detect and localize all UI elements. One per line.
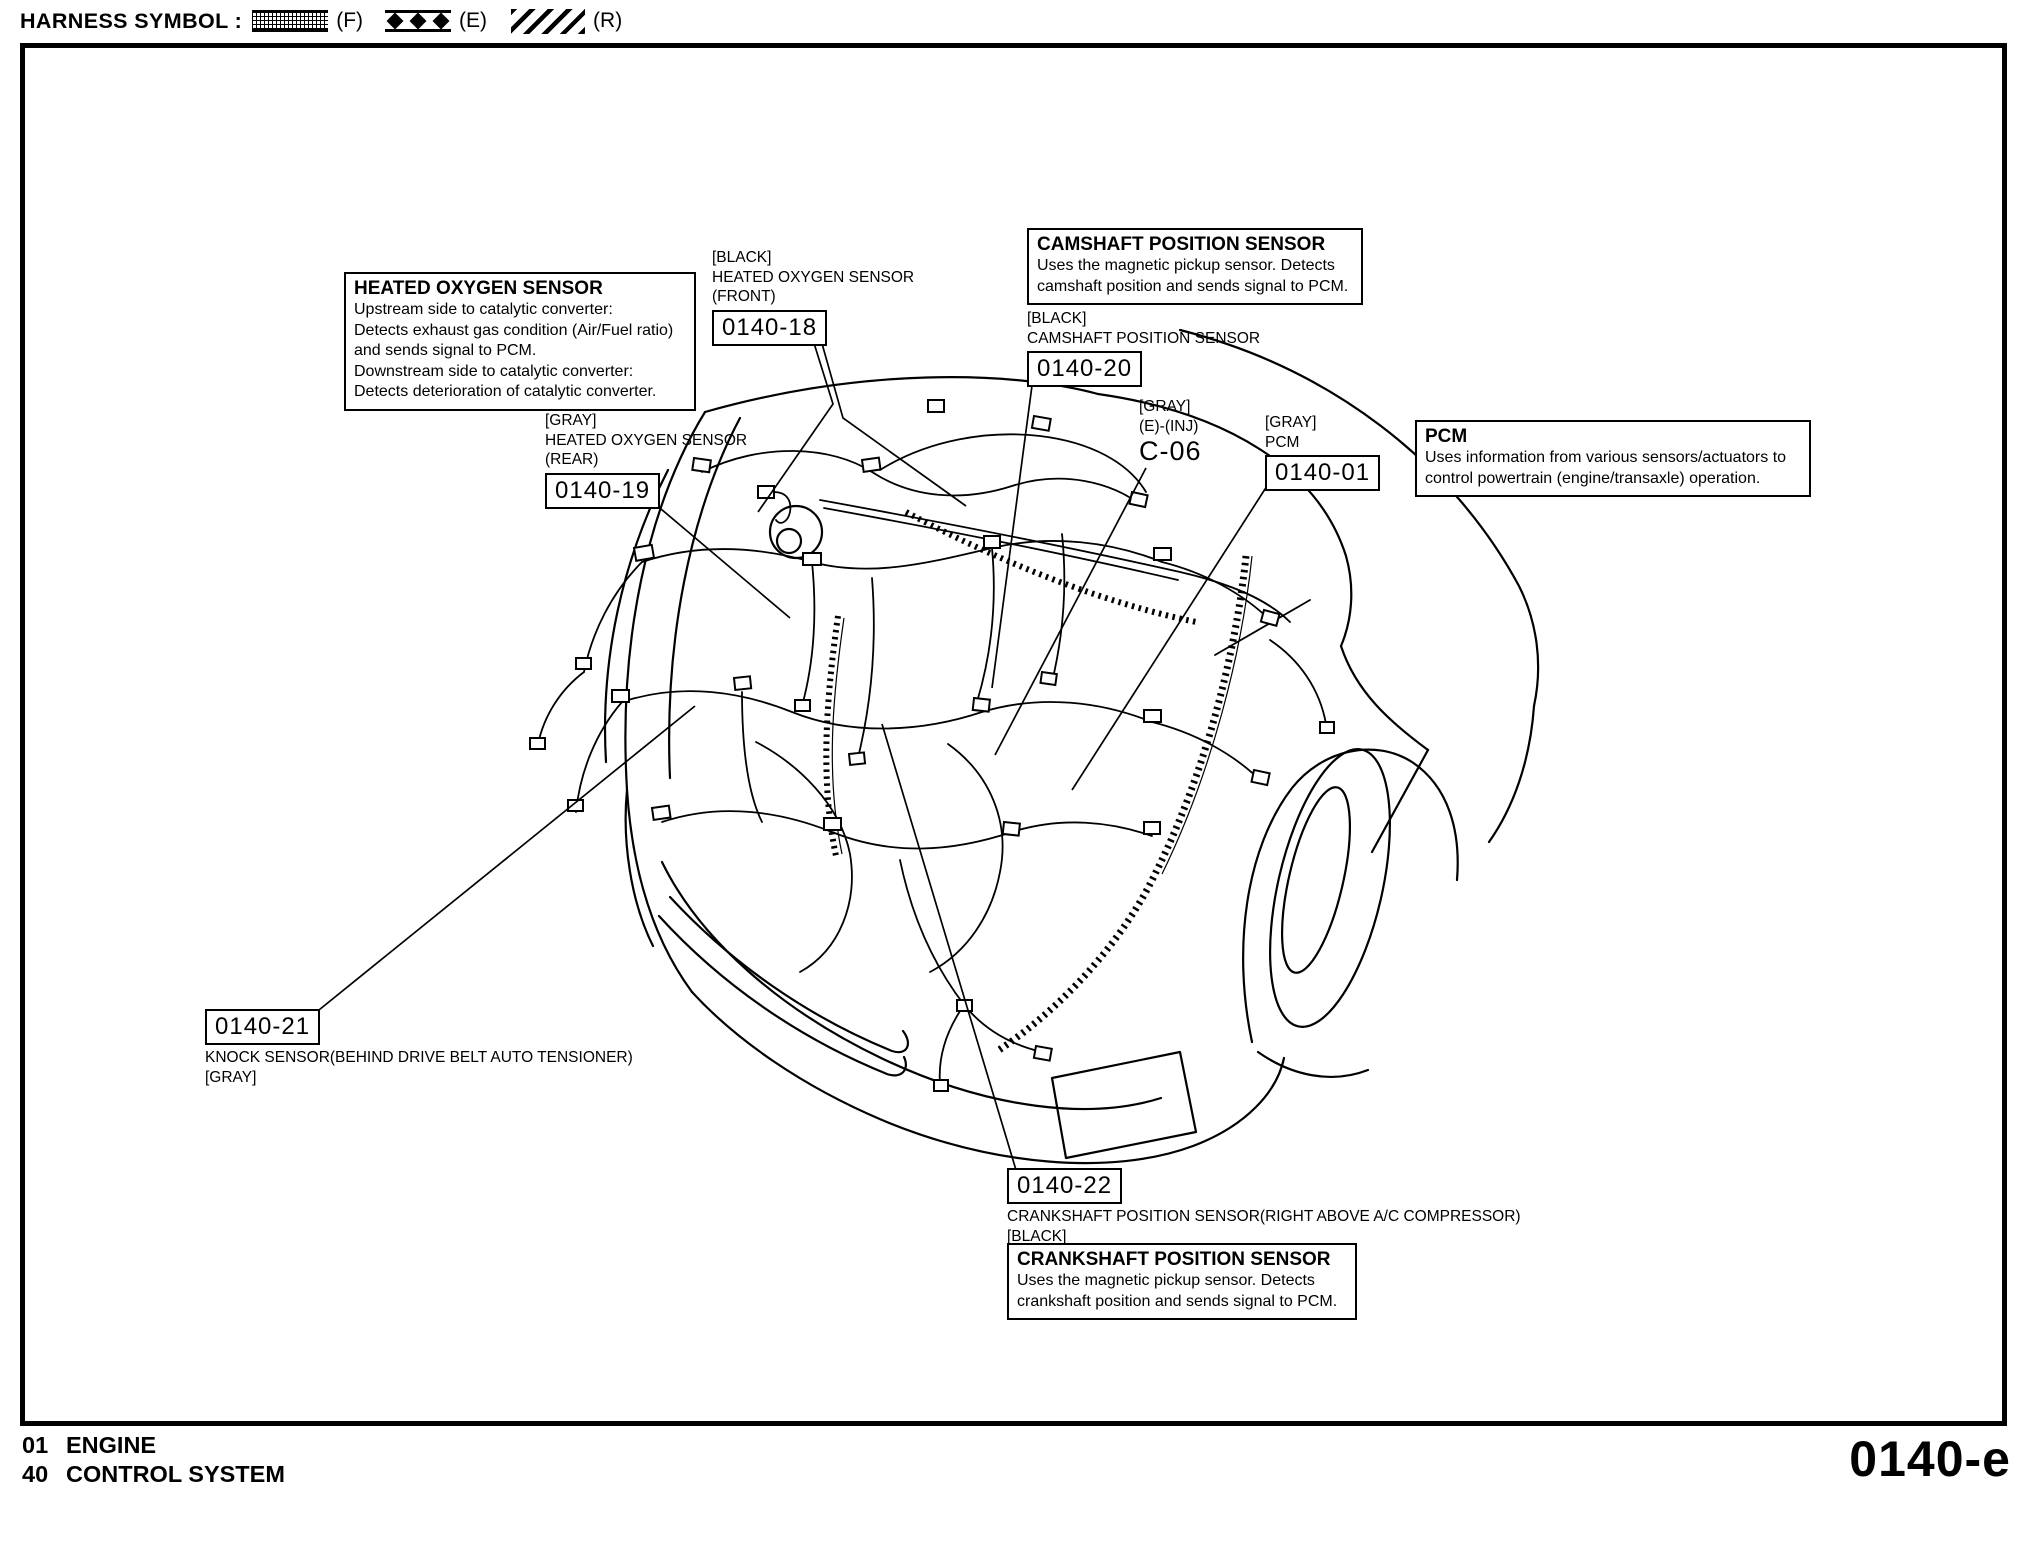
section-row: 01ENGINE <box>22 1431 285 1460</box>
engine-harness-letter: (E) <box>459 9 487 33</box>
info-box-line: Uses information from various sensors/ac… <box>1425 448 1801 469</box>
component-name: (E)-(INJ) <box>1139 417 1202 437</box>
component-name: CAMSHAFT POSITION SENSOR <box>1027 329 1260 349</box>
xref-0140-19[interactable]: 0140-19 <box>545 473 660 509</box>
harness-color-tag: [GRAY] <box>1265 413 1380 433</box>
connector-code-c06: C-06 <box>1139 436 1202 467</box>
info-box-line: control powertrain (engine/transaxle) op… <box>1425 469 1801 490</box>
section-number: 40 <box>22 1460 66 1489</box>
engine-harness-symbol <box>385 10 451 32</box>
info-box-line: Downstream side to catalytic converter: <box>354 362 686 383</box>
xref-0140-21[interactable]: 0140-21 <box>205 1009 320 1045</box>
rear-harness-letter: (R) <box>593 9 622 33</box>
harness-color-tag: [BLACK] <box>712 248 914 268</box>
diamond-icon <box>433 13 450 30</box>
component-position: (REAR) <box>545 450 747 470</box>
info-box-line: Uses the magnetic pickup sensor. Detects <box>1037 256 1353 277</box>
info-box-line: and sends signal to PCM. <box>354 341 686 362</box>
info-box-line: Uses the magnetic pickup sensor. Detects <box>1017 1271 1347 1292</box>
xref-0140-18[interactable]: 0140-18 <box>712 310 827 346</box>
harness-color-tag: [BLACK] <box>1007 1227 1521 1247</box>
label-knock-sensor: 0140-21 KNOCK SENSOR(BEHIND DRIVE BELT A… <box>205 1009 633 1087</box>
section-row: 40CONTROL SYSTEM <box>22 1460 285 1489</box>
label-hos-rear: [GRAY] HEATED OXYGEN SENSOR (REAR) 0140-… <box>545 411 747 509</box>
xref-0140-01[interactable]: 0140-01 <box>1265 455 1380 491</box>
front-harness-symbol <box>252 10 328 32</box>
diamond-icon <box>387 13 404 30</box>
section-heading: 01ENGINE 40CONTROL SYSTEM <box>22 1431 285 1489</box>
info-box-heated-oxygen-sensor: HEATED OXYGEN SENSOR Upstream side to ca… <box>344 272 696 411</box>
info-box-camshaft-position-sensor: CAMSHAFT POSITION SENSOR Uses the magnet… <box>1027 228 1363 305</box>
section-name: ENGINE <box>66 1432 156 1458</box>
xref-0140-20[interactable]: 0140-20 <box>1027 351 1142 387</box>
info-box-line: Detects deterioration of catalytic conve… <box>354 382 686 403</box>
info-box-crankshaft-position-sensor: CRANKSHAFT POSITION SENSOR Uses the magn… <box>1007 1243 1357 1320</box>
component-name: CRANKSHAFT POSITION SENSOR(RIGHT ABOVE A… <box>1007 1207 1521 1227</box>
info-box-title: CRANKSHAFT POSITION SENSOR <box>1017 1249 1347 1271</box>
info-box-line: camshaft position and sends signal to PC… <box>1037 277 1353 298</box>
label-hos-front: [BLACK] HEATED OXYGEN SENSOR (FRONT) 014… <box>712 248 914 346</box>
info-box-line: crankshaft position and sends signal to … <box>1017 1292 1347 1313</box>
page-code: 0140-e <box>1849 1431 2011 1487</box>
section-name: CONTROL SYSTEM <box>66 1461 285 1487</box>
info-box-line: Detects exhaust gas condition (Air/Fuel … <box>354 321 686 342</box>
xref-0140-22[interactable]: 0140-22 <box>1007 1168 1122 1204</box>
front-harness-letter: (F) <box>336 9 363 33</box>
label-crankshaft-sensor: 0140-22 CRANKSHAFT POSITION SENSOR(RIGHT… <box>1007 1168 1521 1246</box>
harness-color-tag: [BLACK] <box>1027 309 1260 329</box>
label-pcm-connector: [GRAY] PCM 0140-01 <box>1265 413 1380 491</box>
label-camshaft-sensor: [BLACK] CAMSHAFT POSITION SENSOR 0140-20 <box>1027 309 1260 387</box>
label-injector-connector: [GRAY] (E)-(INJ) C-06 <box>1139 397 1202 467</box>
info-box-title: CAMSHAFT POSITION SENSOR <box>1037 234 1353 256</box>
info-box-title: PCM <box>1425 426 1801 448</box>
component-name: KNOCK SENSOR(BEHIND DRIVE BELT AUTO TENS… <box>205 1048 633 1068</box>
info-box-line: Upstream side to catalytic converter: <box>354 300 686 321</box>
harness-color-tag: [GRAY] <box>1139 397 1202 417</box>
diamond-icon <box>410 13 427 30</box>
component-position: (FRONT) <box>712 287 914 307</box>
component-name: HEATED OXYGEN SENSOR <box>712 268 914 288</box>
info-box-pcm: PCM Uses information from various sensor… <box>1415 420 1811 497</box>
harness-symbol-label: HARNESS SYMBOL : <box>20 9 242 34</box>
section-number: 01 <box>22 1431 66 1460</box>
harness-color-tag: [GRAY] <box>545 411 747 431</box>
info-box-title: HEATED OXYGEN SENSOR <box>354 278 686 300</box>
harness-symbol-legend: HARNESS SYMBOL : (F) (E) (R) <box>20 2 622 40</box>
component-name: HEATED OXYGEN SENSOR <box>545 431 747 451</box>
harness-color-tag: [GRAY] <box>205 1068 633 1088</box>
rear-harness-symbol <box>511 9 585 34</box>
component-name: PCM <box>1265 433 1380 453</box>
